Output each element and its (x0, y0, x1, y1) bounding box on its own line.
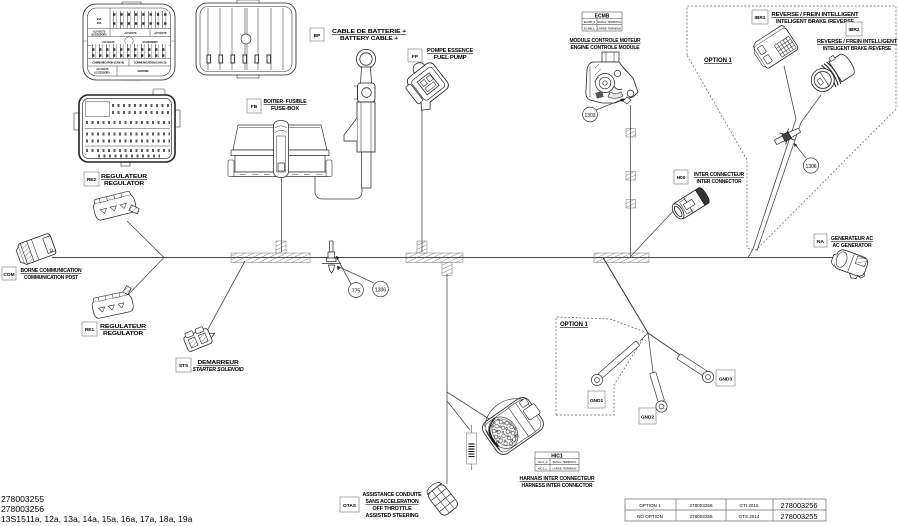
svg-text:H00: H00 (677, 175, 686, 181)
svg-text:ASSISTED STEERING: ASSISTED STEERING (366, 513, 419, 519)
svg-text:REGULATEUR: REGULATEUR (101, 174, 147, 180)
svg-text:COMMUNICATION (CAN LO): COMMUNICATION (CAN LO) (134, 61, 167, 65)
svg-text:13S1511a, 12a, 13a, 14a, 15a,: 13S1511a, 12a, 13a, 14a, 15a, 16a, 17a, … (1, 514, 193, 524)
svg-text:HARNAIS INTER CONNECTEUR: HARNAIS INTER CONNECTEUR (520, 476, 595, 482)
svg-text:+12 VOLTS: +12 VOLTS (96, 67, 109, 71)
svg-text:OTAS: OTAS (343, 503, 357, 509)
svg-text:GND1: GND1 (590, 398, 604, 404)
svg-text:GENERATEUR AC: GENERATEUR AC (831, 236, 873, 242)
svg-text:AC GENERATOR: AC GENERATOR (833, 243, 872, 249)
svg-text:278003255: 278003255 (781, 512, 818, 521)
svg-text:REVERSE / FREIN INTELLIGENT: REVERSE / FREIN INTELLIGENT (817, 39, 898, 45)
svg-text:GTS 2014: GTS 2014 (739, 514, 760, 519)
svg-text:REGULATOR: REGULATOR (104, 181, 144, 187)
svg-text:775: 775 (352, 289, 361, 295)
svg-text:OPTION 1: OPTION 1 (704, 58, 733, 64)
svg-text:ECMB: ECMB (595, 13, 610, 19)
svg-text:278003256: 278003256 (690, 503, 713, 508)
svg-text:COMMUNICATION POST: COMMUNICATION POST (24, 275, 79, 281)
svg-text:40A: 40A (97, 21, 102, 25)
svg-text:BOITIER- FUSIBLE: BOITIER- FUSIBLE (264, 99, 307, 105)
svg-text:ACCESSORY: ACCESSORY (142, 40, 158, 44)
svg-text:COM: COM (3, 272, 14, 278)
svg-text:HIC1: HIC1 (551, 453, 563, 459)
svg-text:FB: FB (251, 104, 258, 110)
svg-text:IBR2: IBR2 (849, 27, 860, 33)
svg-text:1306: 1306 (375, 288, 386, 294)
svg-text:+12 VOLTS: +12 VOLTS (124, 31, 137, 35)
svg-text:GND3: GND3 (719, 377, 733, 383)
svg-text:HIC1_L: HIC1_L (538, 466, 548, 470)
svg-text:NA: NA (817, 239, 824, 245)
svg-text:FUEL PUMP: FUEL PUMP (434, 55, 467, 61)
svg-text:+12 VOLTS: +12 VOLTS (102, 40, 115, 44)
svg-text:GND2: GND2 (641, 415, 655, 421)
svg-text:1306: 1306 (805, 164, 816, 170)
svg-text:INTER CONNECTEUR: INTER CONNECTEUR (694, 172, 744, 178)
svg-text:REGULATEUR: REGULATEUR (100, 324, 146, 330)
svg-text:30A: 30A (97, 17, 102, 21)
svg-text:ASSISTANCE CONDUITE: ASSISTANCE CONDUITE (363, 492, 423, 498)
svg-text:CABLE DE BATTERIE +: CABLE DE BATTERIE + (332, 29, 407, 35)
svg-text:1303: 1303 (584, 113, 595, 119)
svg-text:FUSE-BOX: FUSE-BOX (271, 106, 299, 112)
svg-text:FP: FP (412, 54, 419, 60)
svg-text:278003255: 278003255 (690, 514, 713, 519)
svg-text:STS: STS (179, 363, 189, 369)
svg-text:278003256: 278003256 (1, 504, 44, 514)
svg-text:BATTERY CABLE +: BATTERY CABLE + (340, 36, 399, 42)
svg-text:OFF THROTTLE: OFF THROTTLE (373, 506, 413, 512)
svg-text:ECMB_S: ECMB_S (584, 20, 596, 24)
svg-text:HIC1_S: HIC1_S (538, 460, 548, 464)
svg-text:INTELIGENT BRAKE /REVERSE: INTELIGENT BRAKE /REVERSE (823, 46, 891, 52)
svg-text:STARTER SOLENOID: STARTER SOLENOID (193, 367, 244, 373)
svg-text:+12 VOLTS: +12 VOLTS (154, 31, 167, 35)
svg-text:RE1: RE1 (85, 327, 95, 333)
svg-text:BP: BP (314, 33, 321, 39)
svg-text:REVERSE / FREIN INTELLIGENT: REVERSE / FREIN INTELLIGENT (772, 12, 860, 18)
svg-text:OPTION 1: OPTION 1 (639, 503, 661, 508)
svg-text:278003255: 278003255 (1, 494, 44, 504)
svg-text:GROUND: GROUND (138, 69, 149, 73)
svg-text:BORNE COMMUNICATION: BORNE COMMUNICATION (21, 268, 82, 274)
svg-text:REGULATOR: REGULATOR (103, 331, 143, 337)
svg-text:OPTION 1: OPTION 1 (560, 322, 589, 328)
svg-text:ENGINE CONTROLE MODULE: ENGINE CONTROLE MODULE (571, 45, 640, 51)
svg-text:LARGE TERMINAL: LARGE TERMINAL (597, 26, 622, 30)
svg-text:278003256: 278003256 (781, 501, 818, 510)
svg-text:SMALL TERMINAL: SMALL TERMINAL (598, 20, 622, 24)
svg-text:HARNESS INTER CONNECTOR: HARNESS INTER CONNECTOR (522, 483, 593, 489)
svg-text:ECMB_L: ECMB_L (584, 26, 596, 30)
svg-text:INTER CONNECTOR: INTER CONNECTOR (697, 179, 742, 185)
svg-text:GTI 2015: GTI 2015 (739, 503, 759, 508)
svg-text:NO OPTION: NO OPTION (637, 514, 663, 519)
svg-text:ACCESSORY: ACCESSORY (91, 33, 107, 37)
svg-text:RE2: RE2 (87, 177, 97, 183)
svg-text:COMMUNICATION (CAN HI): COMMUNICATION (CAN HI) (92, 61, 124, 65)
svg-text:INTELIGENT BRAKE /REVERSE: INTELIGENT BRAKE /REVERSE (776, 19, 854, 25)
svg-text:SMALL TERMINAL: SMALL TERMINAL (553, 460, 577, 464)
svg-text:POMPE ESSENCE: POMPE ESSENCE (427, 48, 473, 54)
svg-text:MODULE CONTROLE MOTEUR: MODULE CONTROLE MOTEUR (570, 38, 641, 44)
svg-text:DEMARREUR: DEMARREUR (198, 360, 239, 366)
svg-text:IBR1: IBR1 (755, 15, 766, 21)
svg-text:SANS ACCELERATION: SANS ACCELERATION (366, 499, 419, 505)
svg-text:LARGE TERMINAL: LARGE TERMINAL (552, 466, 577, 470)
svg-text:ACCESSORY: ACCESSORY (94, 71, 110, 75)
